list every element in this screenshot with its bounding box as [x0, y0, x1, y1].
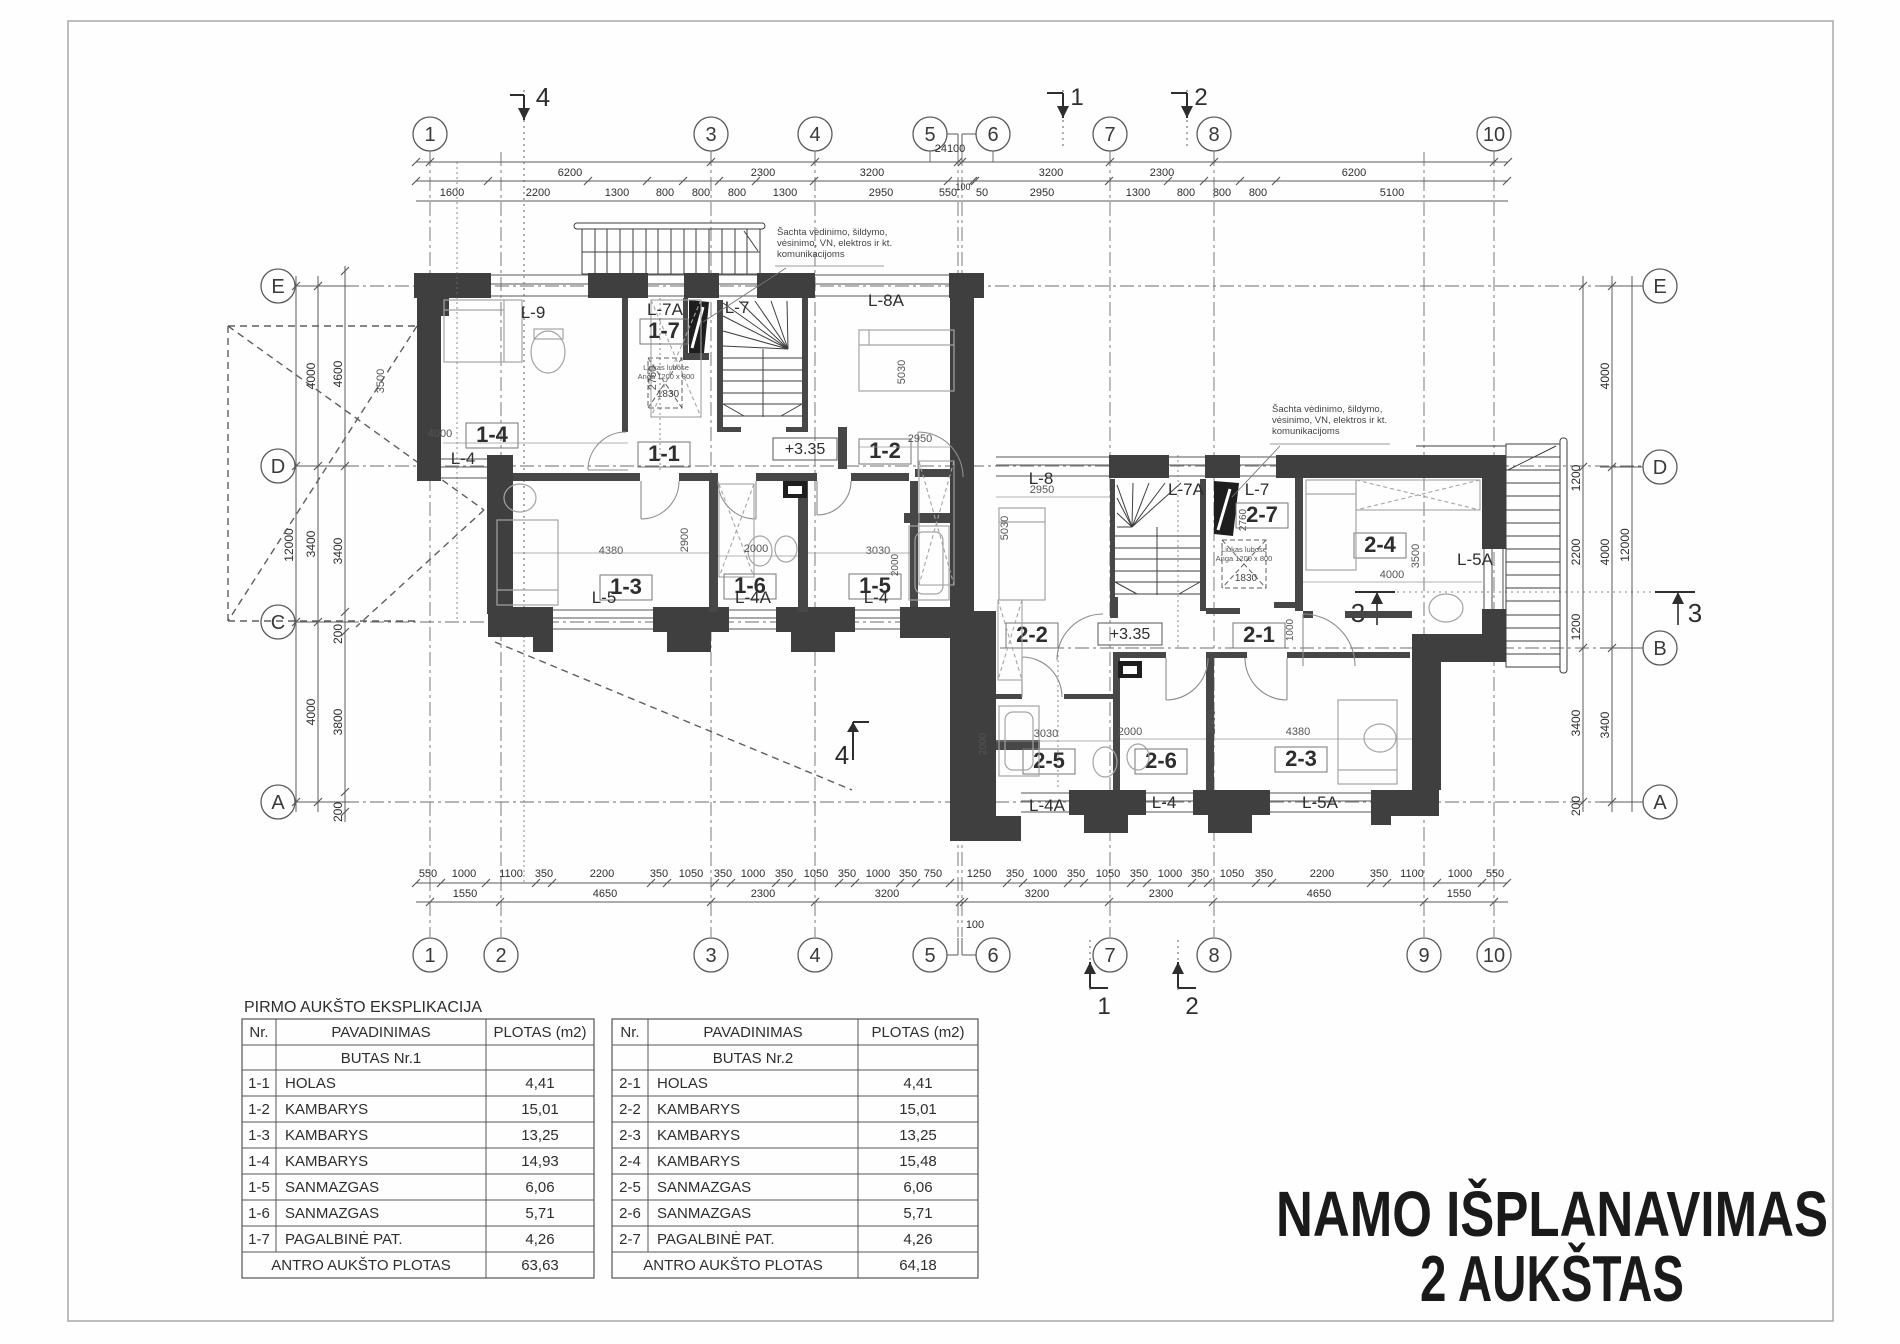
svg-text:6: 6: [987, 124, 998, 146]
svg-text:2950: 2950: [908, 433, 932, 445]
svg-text:50: 50: [976, 187, 988, 199]
svg-text:SANMAZGAS: SANMAZGAS: [285, 1179, 379, 1196]
svg-text:1-7: 1-7: [648, 318, 680, 343]
svg-text:4,41: 4,41: [903, 1075, 932, 1092]
svg-text:PAVADINIMAS: PAVADINIMAS: [331, 1024, 430, 1041]
svg-text:HOLAS: HOLAS: [657, 1075, 708, 1092]
svg-text:4,26: 4,26: [525, 1231, 554, 1248]
svg-text:2-3: 2-3: [619, 1127, 641, 1144]
svg-text:B: B: [1653, 638, 1666, 660]
svg-text:KAMBARYS: KAMBARYS: [657, 1127, 740, 1144]
svg-text:1300: 1300: [1126, 187, 1150, 199]
svg-text:550: 550: [939, 187, 957, 199]
svg-text:komunikacijoms: komunikacijoms: [777, 249, 845, 260]
svg-text:Šachta vėdinimo, šildymo,: Šachta vėdinimo, šildymo,: [777, 227, 887, 238]
svg-text:1-6: 1-6: [248, 1205, 270, 1222]
svg-text:2-7: 2-7: [619, 1231, 641, 1248]
svg-text:100: 100: [955, 182, 970, 192]
svg-text:1830: 1830: [1235, 573, 1258, 584]
svg-text:1000: 1000: [452, 868, 476, 880]
svg-text:2000: 2000: [978, 732, 989, 755]
svg-text:1000: 1000: [1158, 868, 1182, 880]
svg-text:4,26: 4,26: [903, 1231, 932, 1248]
svg-text:200: 200: [331, 802, 345, 822]
svg-text:1100: 1100: [499, 868, 523, 880]
svg-text:1-4: 1-4: [248, 1153, 270, 1170]
svg-text:6,06: 6,06: [525, 1179, 554, 1196]
svg-text:9: 9: [1418, 945, 1429, 967]
svg-text:2-4: 2-4: [619, 1153, 641, 1170]
svg-text:2200: 2200: [1310, 868, 1334, 880]
svg-text:1000: 1000: [1285, 618, 1296, 641]
svg-text:5,71: 5,71: [525, 1205, 554, 1222]
svg-text:3200: 3200: [875, 888, 899, 900]
svg-text:6,06: 6,06: [903, 1179, 932, 1196]
svg-text:1-2: 1-2: [248, 1101, 270, 1118]
svg-text:2 AUKŠTAS: 2 AUKŠTAS: [1420, 1242, 1684, 1315]
svg-text:4380: 4380: [1286, 726, 1310, 738]
svg-text:2-1: 2-1: [1243, 622, 1275, 647]
svg-text:1000: 1000: [1448, 868, 1472, 880]
svg-text:L-8A: L-8A: [868, 291, 905, 310]
svg-text:3800: 3800: [331, 708, 345, 735]
svg-text:1-3: 1-3: [248, 1127, 270, 1144]
svg-text:1: 1: [1070, 84, 1083, 111]
svg-text:L-5: L-5: [592, 588, 617, 607]
svg-text:800: 800: [1177, 187, 1195, 199]
svg-text:350: 350: [838, 868, 856, 880]
svg-text:L-4: L-4: [1152, 793, 1177, 812]
svg-text:800: 800: [656, 187, 674, 199]
svg-text:2760: 2760: [1238, 508, 1249, 531]
svg-text:2000: 2000: [744, 543, 768, 555]
svg-text:1050: 1050: [1096, 868, 1120, 880]
svg-text:vėsinimo, VN, elektros ir kt.: vėsinimo, VN, elektros ir kt.: [777, 238, 892, 249]
svg-text:3200: 3200: [860, 167, 884, 179]
svg-text:4380: 4380: [599, 545, 623, 557]
svg-text:15,01: 15,01: [899, 1101, 937, 1118]
svg-text:3: 3: [705, 124, 716, 146]
svg-text:1100: 1100: [1400, 868, 1424, 880]
svg-text:2900: 2900: [679, 528, 691, 552]
svg-text:350: 350: [650, 868, 668, 880]
svg-text:2-3: 2-3: [1285, 746, 1317, 771]
svg-text:2300: 2300: [751, 167, 775, 179]
svg-text:4000: 4000: [1380, 569, 1404, 581]
svg-text:L-5A: L-5A: [1457, 550, 1494, 569]
svg-text:1-2: 1-2: [869, 438, 901, 463]
svg-text:1050: 1050: [679, 868, 703, 880]
svg-text:3200: 3200: [1025, 888, 1049, 900]
svg-text:1550: 1550: [453, 888, 477, 900]
svg-text:2760: 2760: [647, 366, 659, 390]
svg-text:550: 550: [1486, 868, 1504, 880]
svg-text:2: 2: [495, 945, 506, 967]
svg-text:2300: 2300: [1150, 167, 1174, 179]
svg-text:PAGALBINĖ PAT.: PAGALBINĖ PAT.: [285, 1230, 403, 1248]
svg-text:6200: 6200: [558, 167, 582, 179]
svg-text:3400: 3400: [331, 537, 345, 564]
svg-text:1: 1: [1097, 993, 1110, 1020]
svg-text:3030: 3030: [866, 545, 890, 557]
svg-text:D: D: [1653, 457, 1667, 479]
svg-text:550: 550: [419, 868, 437, 880]
svg-text:2-6: 2-6: [1145, 748, 1177, 773]
svg-text:63,63: 63,63: [521, 1257, 559, 1274]
svg-text:350: 350: [1067, 868, 1085, 880]
svg-text:1050: 1050: [804, 868, 828, 880]
svg-text:HOLAS: HOLAS: [285, 1075, 336, 1092]
svg-text:2300: 2300: [751, 888, 775, 900]
svg-text:4: 4: [835, 740, 849, 770]
svg-text:PLOTAS (m2): PLOTAS (m2): [493, 1024, 586, 1041]
svg-text:PAGALBINĖ PAT.: PAGALBINĖ PAT.: [657, 1230, 775, 1248]
svg-text:8: 8: [1208, 124, 1219, 146]
svg-text:800: 800: [692, 187, 710, 199]
svg-text:4000: 4000: [428, 428, 452, 440]
svg-text:komunikacijoms: komunikacijoms: [1272, 426, 1340, 437]
svg-text:SANMAZGAS: SANMAZGAS: [657, 1205, 751, 1222]
svg-text:2200: 2200: [1569, 538, 1583, 565]
svg-text:L-7A: L-7A: [647, 300, 684, 319]
svg-text:3500: 3500: [375, 369, 387, 393]
svg-text:3: 3: [1688, 598, 1702, 628]
svg-text:2900: 2900: [1206, 710, 1218, 734]
svg-text:750: 750: [924, 868, 942, 880]
svg-text:1-7: 1-7: [248, 1231, 270, 1248]
svg-text:3030: 3030: [1034, 728, 1058, 740]
svg-text:+3.35: +3.35: [785, 441, 826, 458]
svg-text:2000: 2000: [1118, 726, 1142, 738]
svg-text:1250: 1250: [967, 868, 991, 880]
svg-text:3400: 3400: [304, 530, 318, 557]
svg-text:1300: 1300: [605, 187, 629, 199]
svg-text:350: 350: [1006, 868, 1024, 880]
svg-text:SANMAZGAS: SANMAZGAS: [285, 1205, 379, 1222]
svg-text:350: 350: [1130, 868, 1148, 880]
svg-text:6: 6: [987, 945, 998, 967]
svg-text:Liukas lubose: Liukas lubose: [1221, 545, 1267, 554]
svg-text:13,25: 13,25: [521, 1127, 559, 1144]
svg-text:15,01: 15,01: [521, 1101, 559, 1118]
svg-text:A: A: [271, 792, 285, 814]
svg-text:4600: 4600: [331, 360, 345, 387]
svg-text:2200: 2200: [590, 868, 614, 880]
svg-text:Šachta vėdinimo, šildymo,: Šachta vėdinimo, šildymo,: [1272, 404, 1382, 415]
svg-text:2-2: 2-2: [1016, 622, 1048, 647]
svg-text:350: 350: [775, 868, 793, 880]
svg-text:4: 4: [809, 945, 820, 967]
svg-text:SANMAZGAS: SANMAZGAS: [657, 1179, 751, 1196]
svg-text:PAVADINIMAS: PAVADINIMAS: [703, 1024, 802, 1041]
svg-text:350: 350: [1255, 868, 1273, 880]
svg-text:ANTRO AUKŠTO PLOTAS: ANTRO AUKŠTO PLOTAS: [643, 1257, 823, 1274]
svg-text:2-5: 2-5: [1033, 748, 1065, 773]
svg-text:1550: 1550: [1447, 888, 1471, 900]
svg-text:4,41: 4,41: [525, 1075, 554, 1092]
svg-text:L-7A: L-7A: [1168, 480, 1205, 499]
svg-text:1-1: 1-1: [248, 1075, 270, 1092]
svg-text:2950: 2950: [869, 187, 893, 199]
svg-text:12000: 12000: [1618, 528, 1632, 562]
svg-text:2950: 2950: [1030, 484, 1054, 496]
svg-text:4000: 4000: [304, 698, 318, 725]
svg-text:800: 800: [1213, 187, 1231, 199]
svg-text:5100: 5100: [1380, 187, 1404, 199]
svg-text:2-7: 2-7: [1246, 502, 1278, 527]
svg-text:800: 800: [728, 187, 746, 199]
svg-text:1000: 1000: [741, 868, 765, 880]
svg-text:2-6: 2-6: [619, 1205, 641, 1222]
svg-text:64,18: 64,18: [899, 1257, 937, 1274]
svg-text:KAMBARYS: KAMBARYS: [657, 1153, 740, 1170]
svg-text:2200: 2200: [526, 187, 550, 199]
svg-text:10: 10: [1483, 945, 1505, 967]
svg-text:Anga 1200 x 800: Anga 1200 x 800: [1216, 554, 1273, 563]
svg-text:L-4: L-4: [864, 588, 889, 607]
svg-text:5,71: 5,71: [903, 1205, 932, 1222]
svg-text:1: 1: [424, 124, 435, 146]
svg-text:PLOTAS (m2): PLOTAS (m2): [871, 1024, 964, 1041]
svg-text:Nr.: Nr.: [249, 1024, 268, 1041]
svg-text:2300: 2300: [1149, 888, 1173, 900]
svg-text:L-4: L-4: [451, 449, 476, 468]
svg-text:BUTAS Nr.1: BUTAS Nr.1: [341, 1050, 422, 1067]
svg-text:350: 350: [535, 868, 553, 880]
svg-text:KAMBARYS: KAMBARYS: [285, 1101, 368, 1118]
svg-text:350: 350: [899, 868, 917, 880]
svg-text:1300: 1300: [773, 187, 797, 199]
svg-text:1050: 1050: [1220, 868, 1244, 880]
svg-text:15,48: 15,48: [899, 1153, 937, 1170]
svg-text:L-5A: L-5A: [1302, 793, 1339, 812]
svg-text:24100: 24100: [935, 143, 966, 155]
svg-text:Nr.: Nr.: [620, 1024, 639, 1041]
svg-text:1000: 1000: [866, 868, 890, 880]
svg-text:4000: 4000: [1598, 362, 1612, 389]
svg-text:13,25: 13,25: [899, 1127, 937, 1144]
svg-text:1600: 1600: [440, 187, 464, 199]
svg-text:KAMBARYS: KAMBARYS: [285, 1153, 368, 1170]
svg-text:2: 2: [1185, 993, 1198, 1020]
svg-text:8: 8: [1208, 945, 1219, 967]
svg-text:E: E: [271, 276, 284, 298]
svg-text:3: 3: [705, 945, 716, 967]
svg-text:800: 800: [1249, 187, 1267, 199]
svg-text:2-5: 2-5: [619, 1179, 641, 1196]
svg-text:4650: 4650: [593, 888, 617, 900]
svg-text:KAMBARYS: KAMBARYS: [285, 1127, 368, 1144]
svg-text:L-4A: L-4A: [1029, 796, 1066, 815]
svg-text:2: 2: [1194, 84, 1207, 111]
svg-text:14,93: 14,93: [521, 1153, 559, 1170]
svg-text:A: A: [1653, 792, 1667, 814]
svg-text:BUTAS Nr.2: BUTAS Nr.2: [713, 1050, 794, 1067]
svg-text:200: 200: [1569, 796, 1583, 816]
svg-text:3400: 3400: [1569, 709, 1583, 736]
svg-text:4: 4: [809, 124, 820, 146]
svg-text:350: 350: [1370, 868, 1388, 880]
svg-text:C: C: [271, 612, 285, 634]
svg-text:2000: 2000: [890, 553, 901, 576]
svg-text:L-9: L-9: [521, 303, 546, 322]
svg-text:3500: 3500: [1410, 544, 1422, 568]
svg-text:5030: 5030: [999, 516, 1011, 540]
svg-text:ANTRO AUKŠTO PLOTAS: ANTRO AUKŠTO PLOTAS: [271, 1257, 451, 1274]
svg-text:D: D: [271, 456, 285, 478]
svg-text:+3.35: +3.35: [1110, 626, 1151, 643]
svg-text:5: 5: [924, 945, 935, 967]
svg-text:1200: 1200: [1569, 613, 1583, 640]
svg-text:2-2: 2-2: [619, 1101, 641, 1118]
svg-text:7: 7: [1104, 124, 1115, 146]
svg-text:7: 7: [1104, 945, 1115, 967]
svg-text:2-4: 2-4: [1364, 532, 1397, 557]
svg-text:4: 4: [536, 82, 550, 112]
svg-text:1-1: 1-1: [648, 441, 680, 466]
svg-text:6200: 6200: [1342, 167, 1366, 179]
svg-text:L-4A: L-4A: [735, 588, 772, 607]
svg-text:vėsinimo, VN, elektros ir kt.: vėsinimo, VN, elektros ir kt.: [1272, 415, 1387, 426]
svg-text:3400: 3400: [1598, 711, 1612, 738]
svg-text:4650: 4650: [1307, 888, 1331, 900]
svg-text:KAMBARYS: KAMBARYS: [657, 1101, 740, 1118]
svg-text:PIRMO AUKŠTO EKSPLIKACIJA: PIRMO AUKŠTO EKSPLIKACIJA: [244, 997, 482, 1016]
svg-text:100: 100: [966, 919, 984, 931]
svg-text:1: 1: [424, 945, 435, 967]
svg-text:1000: 1000: [1033, 868, 1057, 880]
svg-text:350: 350: [1191, 868, 1209, 880]
svg-text:10: 10: [1483, 124, 1505, 146]
svg-text:3200: 3200: [1039, 167, 1063, 179]
svg-text:L-7: L-7: [725, 298, 750, 317]
svg-text:E: E: [1653, 276, 1666, 298]
svg-text:1-5: 1-5: [248, 1179, 270, 1196]
svg-text:350: 350: [714, 868, 732, 880]
svg-text:5030: 5030: [896, 360, 908, 384]
svg-text:L-7: L-7: [1245, 480, 1270, 499]
svg-text:4000: 4000: [1598, 538, 1612, 565]
svg-text:2-1: 2-1: [619, 1075, 641, 1092]
svg-text:NAMO IŠPLANAVIMAS: NAMO IŠPLANAVIMAS: [1276, 1177, 1828, 1250]
svg-text:2950: 2950: [1030, 187, 1054, 199]
